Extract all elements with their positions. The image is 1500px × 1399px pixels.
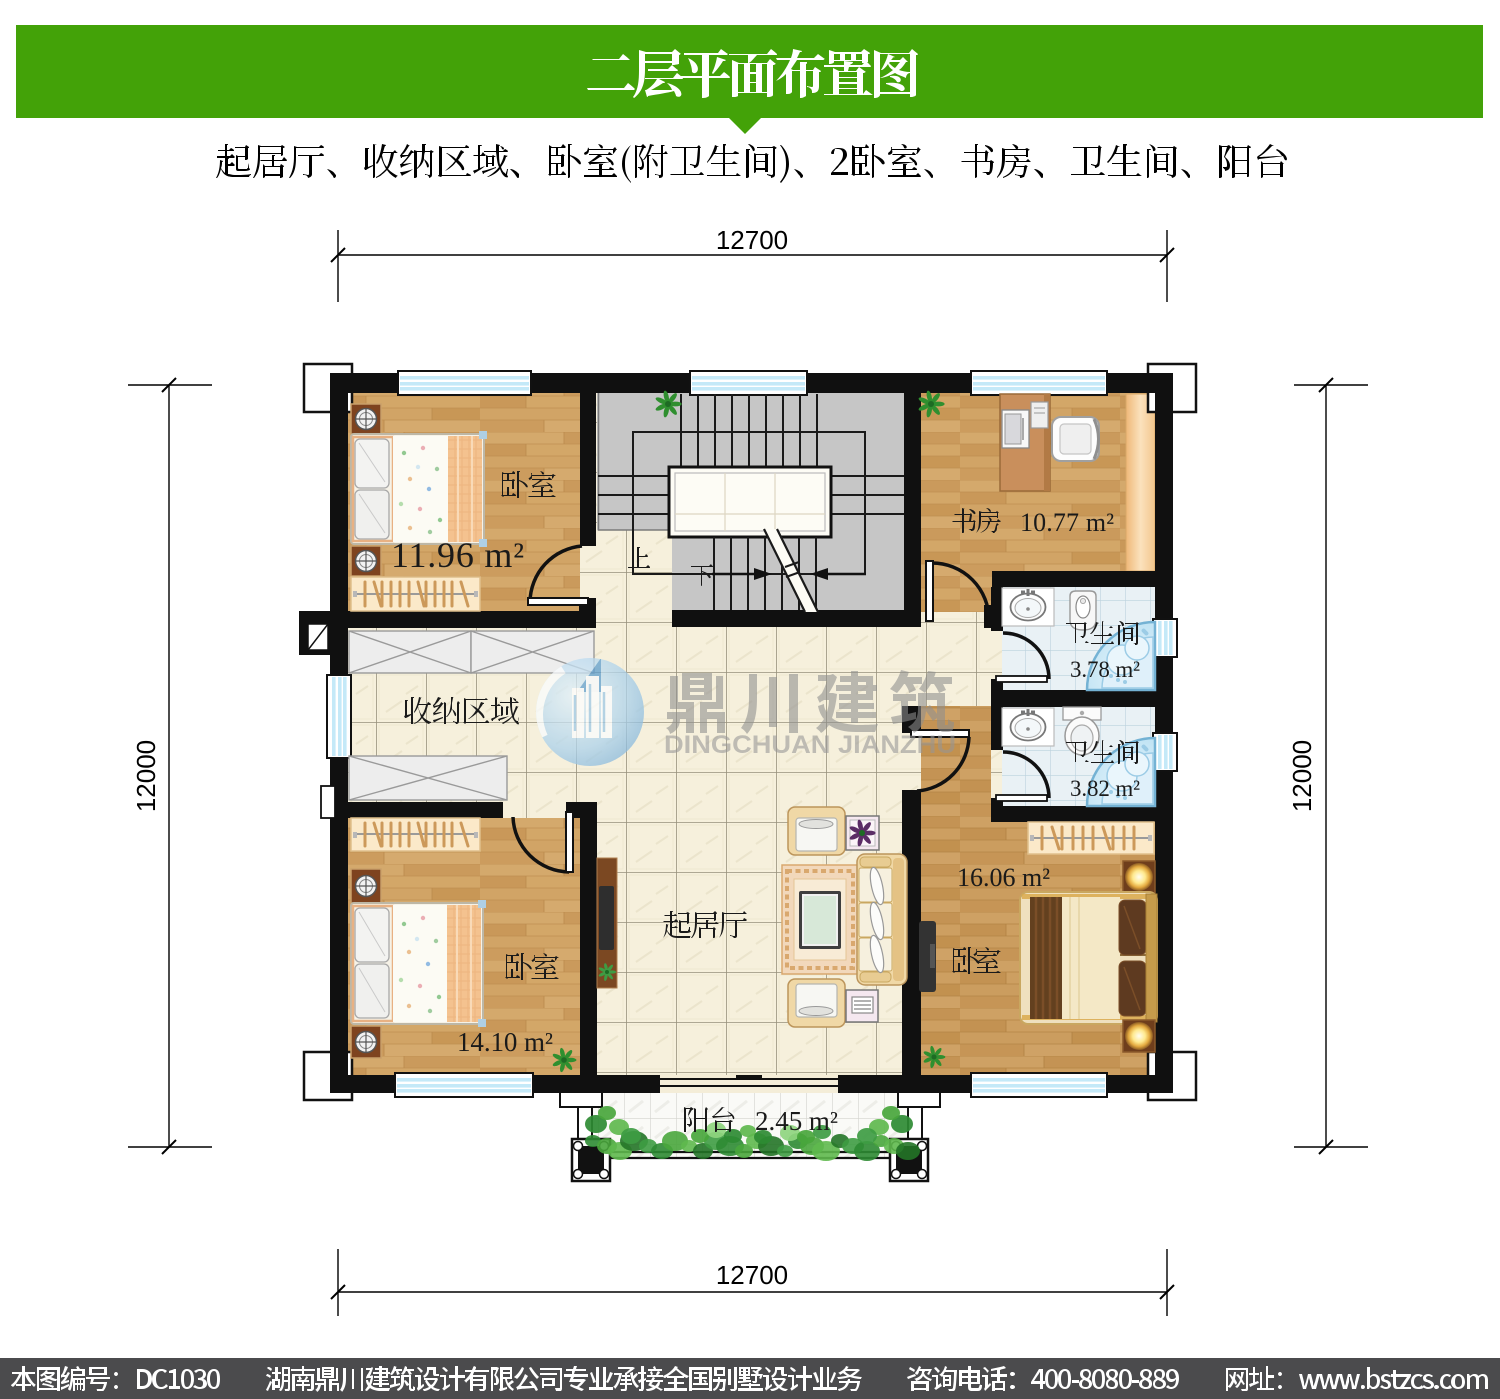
svg-text:12700: 12700 bbox=[716, 1260, 788, 1290]
svg-text:12700: 12700 bbox=[716, 225, 788, 255]
svg-text:2.45 m²: 2.45 m² bbox=[755, 1106, 838, 1136]
svg-text:12000: 12000 bbox=[131, 740, 161, 812]
svg-text:11.96 m²: 11.96 m² bbox=[391, 535, 524, 575]
svg-text:DINGCHUAN JIANZHU: DINGCHUAN JIANZHU bbox=[664, 731, 956, 759]
svg-text:12000: 12000 bbox=[1287, 740, 1317, 812]
svg-text:14.10 m²: 14.10 m² bbox=[457, 1027, 553, 1057]
svg-text:3.82 m²: 3.82 m² bbox=[1070, 776, 1140, 801]
svg-text:10.77 m²: 10.77 m² bbox=[1020, 508, 1114, 537]
svg-text:3.78 m²: 3.78 m² bbox=[1070, 657, 1140, 682]
svg-text:16.06 m²: 16.06 m² bbox=[957, 863, 1050, 892]
